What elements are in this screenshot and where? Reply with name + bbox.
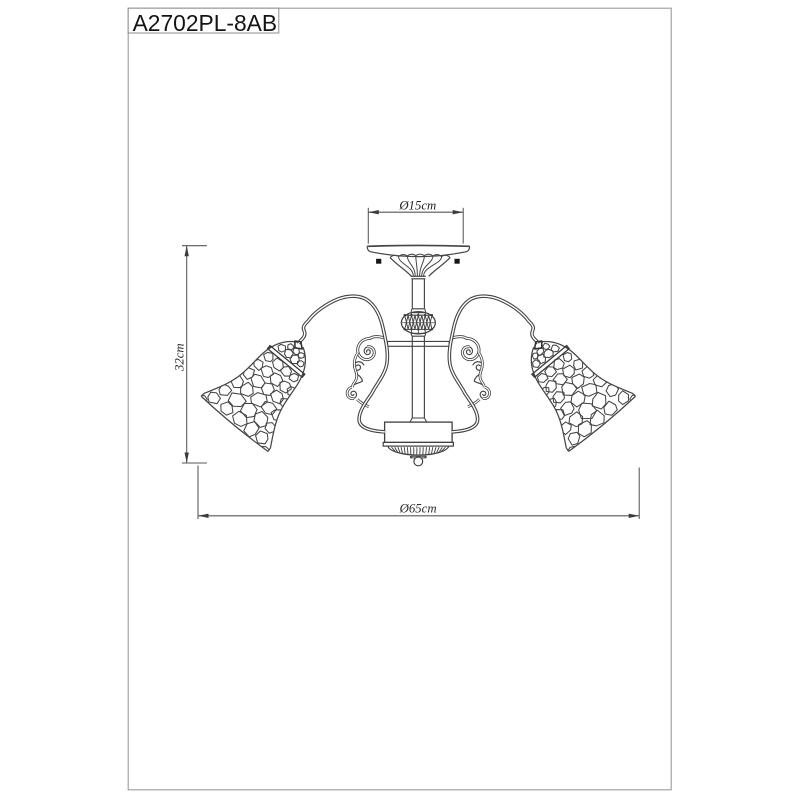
svg-text:Ø15cm: Ø15cm xyxy=(398,198,436,212)
svg-text:32cm: 32cm xyxy=(173,343,187,372)
svg-text:A2702PL-8AB: A2702PL-8AB xyxy=(133,10,277,36)
svg-text:Ø65cm: Ø65cm xyxy=(399,502,437,516)
